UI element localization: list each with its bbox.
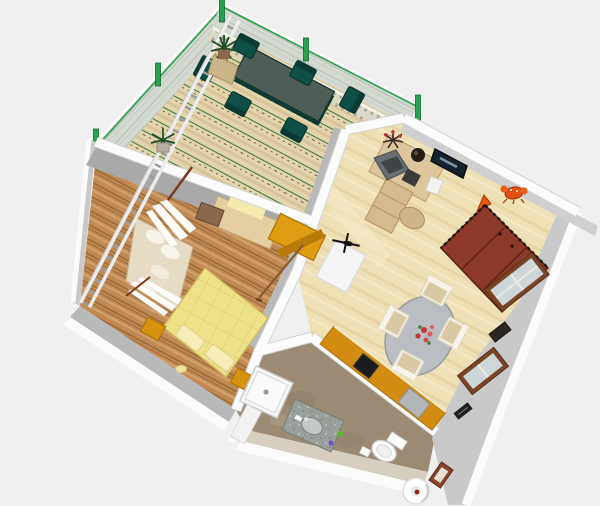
floor-plan-3d-view[interactable] bbox=[0, 0, 600, 506]
soap-bottle-purple bbox=[328, 440, 333, 445]
green-post bbox=[416, 95, 421, 120]
plant-pot bbox=[218, 50, 230, 59]
shower-drain bbox=[263, 389, 268, 394]
slipper bbox=[176, 366, 187, 373]
plant-pot bbox=[157, 143, 169, 152]
desk-bowl bbox=[411, 148, 425, 162]
green-post bbox=[304, 38, 309, 61]
paper-roll-bin bbox=[403, 478, 429, 504]
desk-bowl-highlight bbox=[414, 151, 418, 155]
green-post bbox=[156, 63, 161, 86]
soap-bottle-green bbox=[337, 431, 343, 437]
faucet bbox=[304, 417, 308, 421]
green-post bbox=[220, 0, 225, 22]
